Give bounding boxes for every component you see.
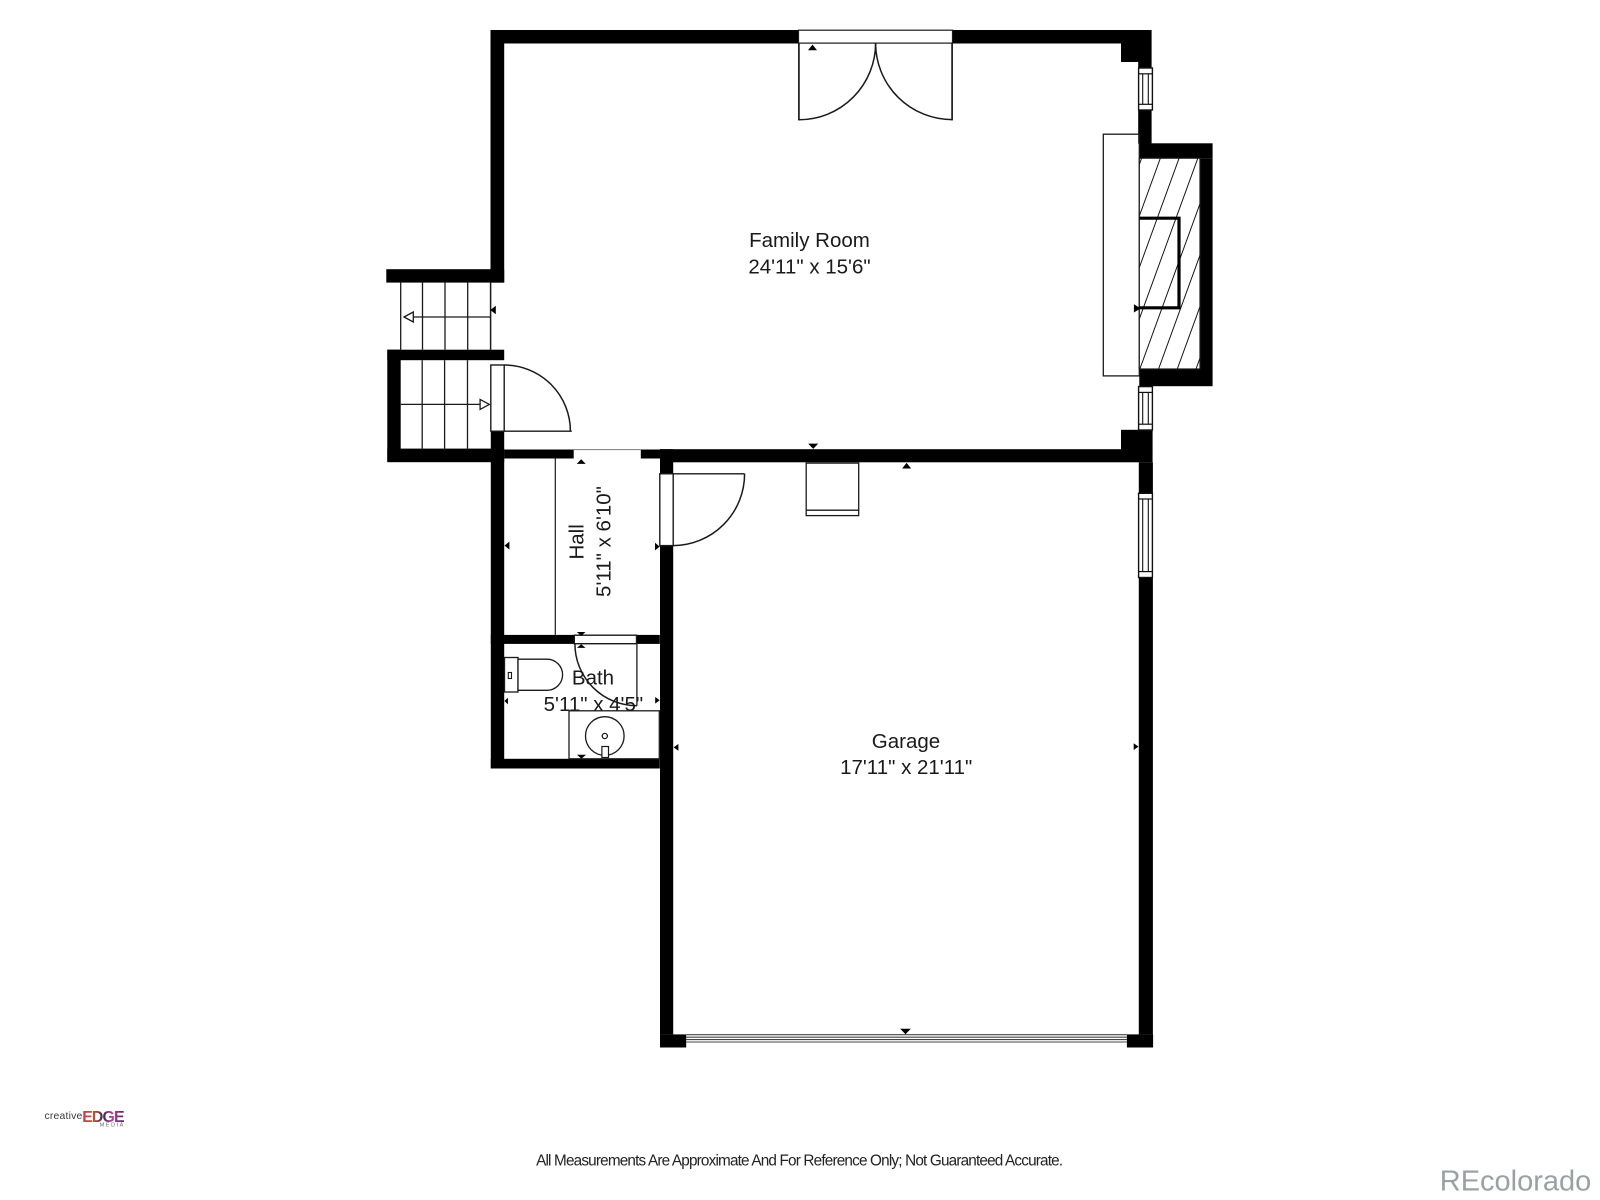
svg-text:Hall: Hall xyxy=(566,524,589,559)
svg-text:5'11" x 4'5": 5'11" x 4'5" xyxy=(544,693,644,716)
svg-text:REcolorado: REcolorado xyxy=(1440,1166,1592,1198)
svg-text:creative: creative xyxy=(45,1111,83,1122)
svg-text:All Measurements Are Approxima: All Measurements Are Approximate And For… xyxy=(536,1152,1062,1169)
svg-text:Bath: Bath xyxy=(572,667,614,690)
svg-text:17'11" x 21'11": 17'11" x 21'11" xyxy=(840,756,972,779)
svg-text:5'11" x 6'10": 5'11" x 6'10" xyxy=(593,486,616,597)
svg-text:Family Room: Family Room xyxy=(749,229,870,252)
svg-text:MEDIA: MEDIA xyxy=(100,1122,125,1128)
svg-text:Garage: Garage xyxy=(872,730,940,753)
svg-text:24'11" x 15'6": 24'11" x 15'6" xyxy=(748,255,870,278)
